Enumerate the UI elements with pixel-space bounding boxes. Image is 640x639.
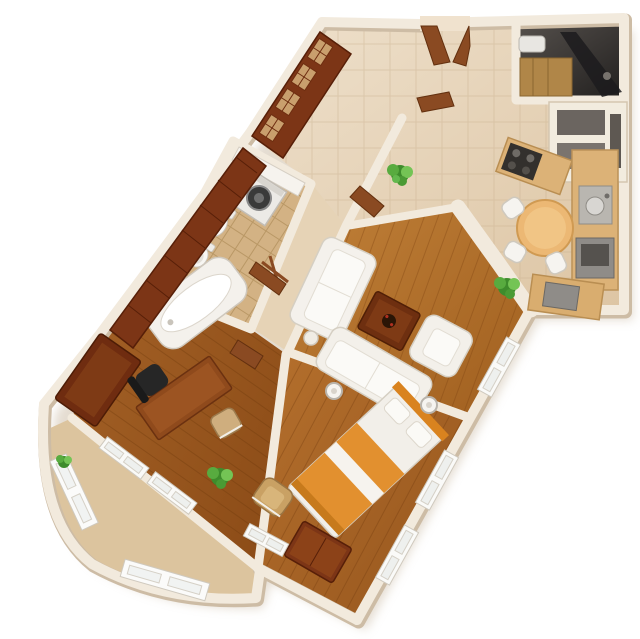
pouf [304,331,318,345]
sink-bowl [586,197,604,215]
floorplan-render [0,0,640,639]
wc-cabinet [520,58,572,96]
wc-basin [519,36,545,52]
faucet [605,194,610,199]
wc-fitting [603,72,611,80]
niche-shelf-top [557,110,605,135]
